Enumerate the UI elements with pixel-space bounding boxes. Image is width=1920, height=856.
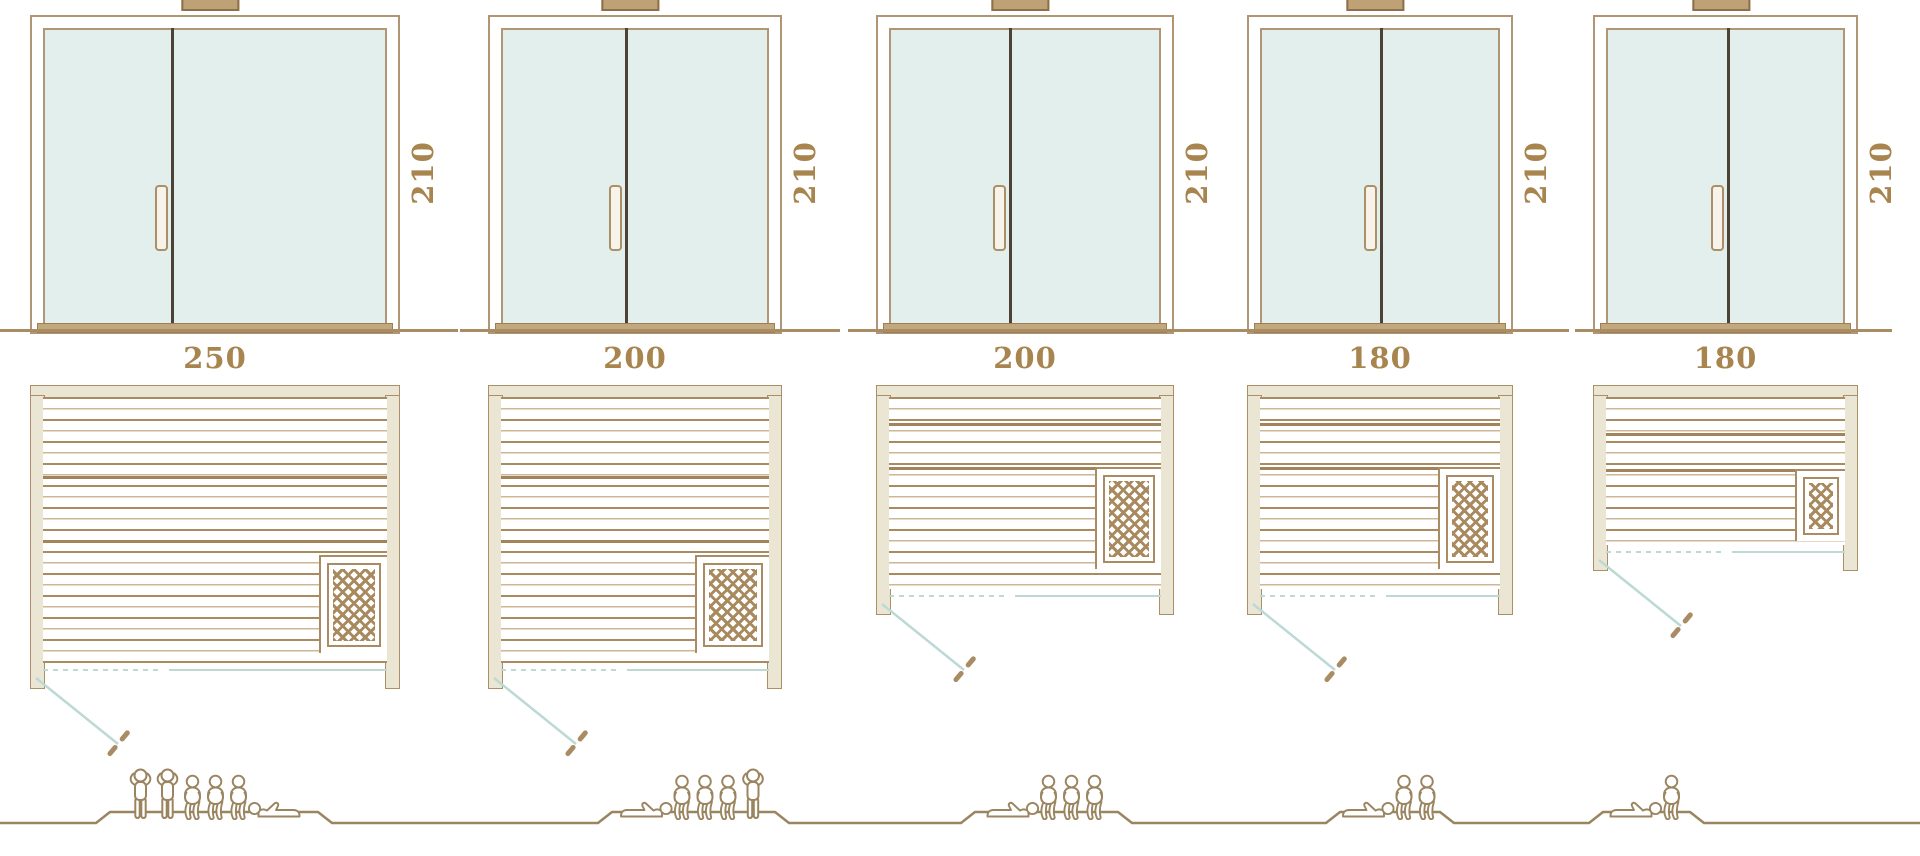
plan-width-label: 200 <box>488 343 782 373</box>
model-column-5: 210 180 <box>1593 0 1858 856</box>
capacity-group <box>617 768 769 820</box>
plan-right-wall <box>1498 395 1513 615</box>
door-open-dashed <box>1606 551 1724 553</box>
heater-lattice <box>1452 481 1488 557</box>
lying-person-icon <box>984 798 1040 820</box>
plan-width-label: 200 <box>876 343 1174 373</box>
capacity-group <box>125 768 304 820</box>
roof-vent <box>1692 0 1750 11</box>
door-handle <box>155 185 168 251</box>
door-open-dashed <box>43 669 161 671</box>
bench-edge <box>1606 433 1845 436</box>
heater <box>1803 477 1839 535</box>
ground-line <box>848 329 1232 332</box>
door-height-label: 210 <box>1521 138 1551 208</box>
door-open-dashed <box>889 595 1007 597</box>
bench-edge <box>43 540 387 543</box>
glass-panels <box>889 28 1161 326</box>
front-glass-line <box>169 669 387 671</box>
door-leaf-divider <box>1009 28 1012 326</box>
floor-plan <box>876 385 1174 605</box>
plan-right-wall <box>1843 395 1858 571</box>
heater-niche <box>1095 467 1161 569</box>
bench-slats <box>501 397 769 663</box>
bench-slats <box>889 397 1161 589</box>
plan-width-label: 180 <box>1247 343 1513 373</box>
glass-panels <box>501 28 769 326</box>
capacity-group <box>1607 774 1686 820</box>
door-height-label: 210 <box>408 138 438 208</box>
bench-edge <box>43 476 387 479</box>
door-threshold <box>1254 323 1506 333</box>
front-glass-line <box>627 669 769 671</box>
bench-slats <box>1260 397 1500 589</box>
door-handle <box>1364 185 1377 251</box>
capacity-group <box>1339 774 1441 820</box>
plan-width-label: 250 <box>30 343 400 373</box>
door-elevation <box>876 15 1174 334</box>
bench-edge <box>889 423 1161 426</box>
door-height-label: 210 <box>1866 138 1896 208</box>
standing-person-icon <box>737 768 769 820</box>
door-height-label: 210 <box>1182 138 1212 208</box>
floor-plan <box>30 385 400 679</box>
bench-edge <box>501 540 769 543</box>
floor-plan <box>488 385 782 679</box>
capacity-group <box>984 774 1109 820</box>
front-glass-line <box>1015 595 1161 597</box>
model-column-1: 210 250 <box>30 0 400 856</box>
heater-lattice <box>333 569 375 641</box>
heater-niche <box>1438 467 1500 569</box>
glass-panels <box>1606 28 1845 326</box>
ground-line <box>460 329 840 332</box>
plan-right-wall <box>385 395 400 689</box>
door-threshold <box>1600 323 1851 333</box>
bench-edge <box>1260 423 1500 426</box>
door-threshold <box>37 323 393 333</box>
door-leaf-divider <box>171 28 174 326</box>
roof-vent <box>991 0 1049 11</box>
door-elevation <box>1593 15 1858 334</box>
ground-line <box>1575 329 1892 332</box>
floor-plan <box>1593 385 1858 561</box>
bench-slats <box>1606 397 1845 545</box>
door-leaf-divider <box>1727 28 1730 326</box>
heater <box>703 563 763 647</box>
heater-niche <box>319 555 387 653</box>
capacity-figures-layer <box>0 758 1920 820</box>
heater-lattice <box>709 569 757 641</box>
door-handle <box>993 185 1006 251</box>
model-column-4: 210 180 <box>1247 0 1513 856</box>
door-threshold <box>495 323 775 333</box>
sitting-person-icon <box>1413 774 1441 820</box>
heater-niche <box>1795 469 1845 541</box>
heater-lattice <box>1809 483 1833 529</box>
lying-person-icon <box>1339 798 1395 820</box>
door-height-label: 210 <box>790 138 820 208</box>
roof-vent <box>1346 0 1404 11</box>
front-glass-line <box>1386 595 1500 597</box>
plan-right-wall <box>767 395 782 689</box>
door-swing <box>876 599 1016 694</box>
ground-line <box>1219 329 1569 332</box>
heater-niche <box>695 555 769 653</box>
door-open-dashed <box>501 669 619 671</box>
sitting-person-icon <box>1658 774 1686 820</box>
door-swing <box>1247 599 1387 694</box>
ground-line <box>0 329 458 332</box>
door-elevation <box>488 15 782 334</box>
plan-width-label: 180 <box>1593 343 1858 373</box>
sauna-comparison-diagram: 210 250 <box>0 0 1920 856</box>
lying-person-icon <box>617 798 673 820</box>
glass-panels <box>43 28 387 326</box>
sitting-person-icon <box>1081 774 1109 820</box>
door-handle <box>609 185 622 251</box>
roof-vent <box>181 0 239 11</box>
door-leaf-divider <box>1380 28 1383 326</box>
plan-right-wall <box>1159 395 1174 615</box>
door-handle <box>1711 185 1724 251</box>
door-swing <box>488 673 628 768</box>
lying-person-icon <box>1607 798 1663 820</box>
front-glass-line <box>1732 551 1845 553</box>
bench-slats <box>43 397 387 663</box>
roof-vent <box>601 0 659 11</box>
heater <box>327 563 381 647</box>
bench-edge <box>501 476 769 479</box>
lying-person-icon <box>248 798 304 820</box>
model-column-2: 210 200 <box>488 0 782 856</box>
model-column-3: 210 200 <box>876 0 1174 856</box>
door-swing <box>30 673 170 768</box>
door-threshold <box>883 323 1167 333</box>
door-elevation <box>1247 15 1513 334</box>
heater <box>1103 475 1155 563</box>
door-open-dashed <box>1260 595 1378 597</box>
floor-plan <box>1247 385 1513 605</box>
door-swing <box>1593 555 1733 650</box>
heater-lattice <box>1109 481 1149 557</box>
heater <box>1446 475 1494 563</box>
door-leaf-divider <box>625 28 628 326</box>
door-elevation <box>30 15 400 334</box>
